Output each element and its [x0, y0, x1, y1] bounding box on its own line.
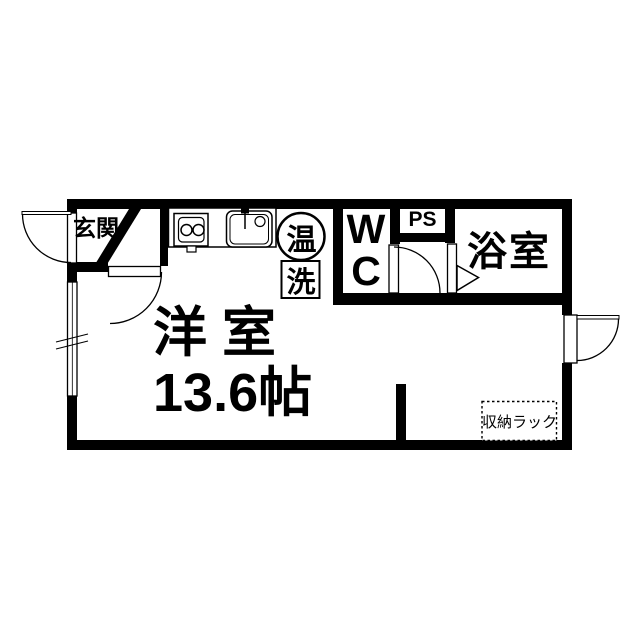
balcony-door [564, 315, 619, 363]
wall-kitchen-stub [160, 209, 168, 266]
wall-bottom [67, 440, 572, 450]
interior-door-leaf [109, 267, 161, 277]
main-room-name: 洋 室 [153, 303, 276, 363]
entrance-door-leaf [22, 212, 71, 215]
wall-room-stub [396, 384, 406, 440]
water-heater-label: 温 [283, 218, 320, 255]
main-room-size: 13.6帖 [153, 363, 312, 423]
storage-rack-label: 収納ラック [482, 401, 557, 441]
entrance-door-swing-arc-icon [23, 214, 72, 263]
wall-right-lower [562, 363, 572, 450]
faucet-base [241, 208, 249, 214]
laundry-label: 洗 [282, 261, 320, 298]
floor-plan: 玄関 温 洗 WC PS 浴室 洋 室 13.6帖 収納ラック [0, 0, 640, 640]
window-icon [56, 282, 88, 396]
wc-door [389, 245, 440, 293]
stove-icon [174, 214, 208, 253]
balcony-door-opening [564, 315, 577, 363]
wall-bath-left-upper [445, 209, 455, 243]
entrance-door [22, 212, 77, 264]
balcony-door-swing-arc-icon [577, 319, 619, 361]
wall-top [67, 199, 572, 209]
wc-label: WC [342, 206, 390, 294]
wall-left-lower [67, 396, 77, 450]
bathroom-label: 浴室 [456, 222, 562, 274]
wc-door-leaf [389, 245, 399, 293]
balcony-door-leaf [577, 316, 619, 320]
sink-icon [227, 208, 273, 248]
kitchen-counter [169, 208, 277, 253]
wc-door-swing-arc-icon [394, 247, 440, 293]
pipe-space-label: PS [399, 206, 446, 234]
sink-inner [230, 215, 269, 245]
main-room-label: 洋 室 13.6帖 [153, 303, 393, 433]
stove-knob [187, 246, 196, 252]
entrance-label: 玄関 [74, 212, 118, 240]
